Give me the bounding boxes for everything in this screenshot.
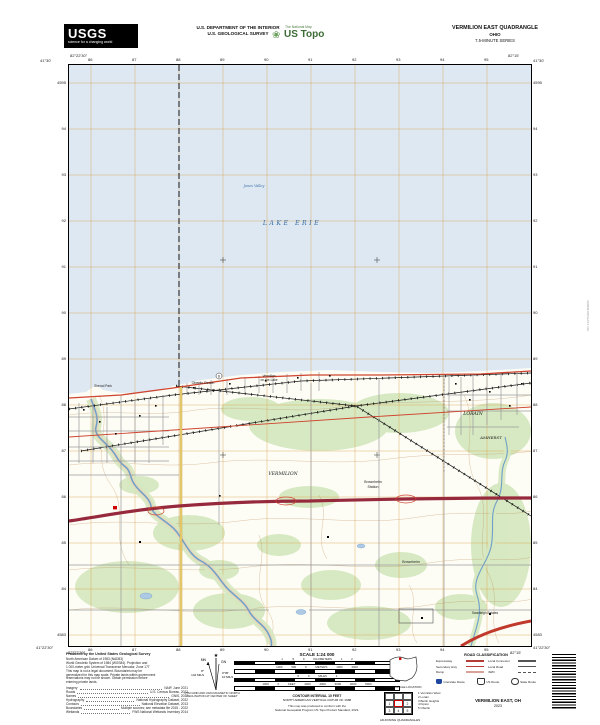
lake-erie-label: LAKE ERIE — [262, 220, 321, 227]
data-sources: ImageryNAIP, June 2021RoadsU.S. Census B… — [66, 687, 188, 714]
grid-tick-top: 90 — [264, 57, 268, 62]
adjoining-grid: 12345 — [384, 692, 413, 715]
grid-tick-bottom: 95 — [484, 647, 488, 652]
grid-tick-left: 4595 — [50, 80, 66, 85]
state-locator: QUADRANGLE LOCATION — [380, 654, 426, 689]
grid-tick-top: 95 — [484, 57, 488, 62]
grid-tick-top: 94 — [440, 57, 444, 62]
road-class-label: Local Connector — [488, 659, 516, 663]
grid-tick-left: 94 — [50, 126, 66, 131]
usgs-logo-word: USGS — [68, 28, 138, 40]
road-class-row: Ramp — [436, 670, 484, 674]
grid-tick-bottom: 93 — [396, 647, 400, 652]
ustopo-brand: US Topo — [284, 30, 332, 40]
road-class-sample — [518, 666, 536, 667]
corner-se-lat: 41°22'30" — [533, 645, 550, 650]
barcode — [552, 654, 576, 710]
map-area[interactable]: 6 LAKE ERIE Jones Valley Sherod Park Obe… — [68, 64, 532, 647]
adjoining-caption: ADJOINING QUADRANGLES — [378, 718, 422, 722]
grid-tick-bottom: 92 — [352, 647, 356, 652]
adjoining-cell — [394, 693, 403, 700]
grid-tick-left: 4583 — [50, 632, 66, 637]
grid-tick-right: 91 — [533, 264, 537, 269]
adjoining-cell: 2 — [403, 700, 412, 707]
grid-tick-bottom: 87 — [132, 647, 136, 652]
road-class-row: Secondary Hwy — [436, 665, 484, 669]
road-class-label: Secondary Hwy — [436, 665, 464, 669]
road-classification-title: ROAD CLASSIFICATION — [436, 653, 536, 657]
sheet-year: 2023 — [446, 704, 550, 708]
grid-tick-left: 84 — [50, 586, 66, 591]
road-class-label: Local Road — [488, 665, 516, 669]
source-value: FWS National Wetlands Inventory 2014 — [132, 711, 188, 715]
adjoining-cell: 4 — [394, 707, 403, 714]
road-class-row: 4WD — [488, 670, 536, 674]
grid-tick-top: 92 — [352, 57, 356, 62]
corner-sw-lat: 41°22'30" — [36, 645, 53, 650]
standard-note: This map was produced to conform with th… — [228, 705, 406, 713]
grid-tick-top: 93 — [396, 57, 400, 62]
ohio-outline — [390, 657, 417, 681]
shield-legend-label: State Route — [520, 680, 536, 684]
lorain-label: LORAIN — [462, 411, 483, 417]
amherst-label: AMHERST — [479, 435, 502, 440]
grid-tick-top: 91 — [308, 57, 312, 62]
road-class-label: 4WD — [488, 670, 516, 674]
sherod-park-label: Sherod Park — [94, 384, 112, 388]
grid-tick-left: 86 — [50, 494, 66, 499]
corner-ne-lat: 41°30' — [533, 58, 544, 63]
grid-tick-top: 88 — [176, 57, 180, 62]
standard-note-line2: National Geospatial Program US Topo Prod… — [228, 709, 406, 713]
grid-tick-right: 89 — [533, 356, 537, 361]
quad-location-marker — [399, 658, 401, 660]
edge-note: VERMILION EAST, OH — [586, 300, 590, 331]
grid-tick-right: 87 — [533, 448, 537, 453]
grid-tick-left: 89 — [50, 356, 66, 361]
quad-series: 7.5-MINUTE SERIES — [400, 38, 590, 43]
corner-nw-lon: 82°22'30" — [70, 53, 87, 58]
road-class-left-column: ExpresswaySecondary HwyRamp — [436, 659, 484, 676]
grid-tick-right: 4595 — [533, 80, 542, 85]
road-class-label: Ramp — [436, 670, 464, 674]
scale-bar-ft — [234, 686, 400, 690]
grid-tick-right: 88 — [533, 402, 537, 407]
grid-tick-right: 92 — [533, 218, 537, 223]
road-class-row: Local Road — [488, 665, 536, 669]
shield-legend-item: US Route — [477, 678, 500, 686]
grid-tick-bottom: 90 — [264, 647, 268, 652]
adjoining-cell: 5 — [403, 707, 412, 714]
road-class-right-column: Local ConnectorLocal Road4WD — [488, 659, 536, 676]
grid-tick-left: 85 — [50, 540, 66, 545]
grid-tick-right: 93 — [533, 172, 537, 177]
grid-tick-left: 93 — [50, 172, 66, 177]
source-leader — [81, 713, 130, 714]
production-credits: Produced by the United States Geological… — [66, 653, 188, 715]
grid-tick-left: 91 — [50, 264, 66, 269]
usgs-logo-tagline: science for a changing world — [68, 40, 138, 44]
sheet-name-block: VERMILION EAST, OH 2023 — [446, 698, 550, 708]
source-leader — [77, 693, 148, 694]
brownhelm-station-label2: Station — [368, 485, 379, 489]
road-classification-legend: ROAD CLASSIFICATION ExpresswaySecondary … — [436, 653, 536, 685]
grid-tick-right: 90 — [533, 310, 537, 315]
road-class-row: Expressway — [436, 659, 484, 663]
ustopo-flower-icon: ❀ — [272, 30, 280, 41]
grid-tick-bottom: 86 — [88, 647, 92, 652]
mn-mils: 142 MILS — [191, 673, 204, 677]
road-class-row: Local Connector — [488, 659, 536, 663]
grid-tick-bottom: 89 — [220, 647, 224, 652]
brownhelm-label: Brownhelm — [402, 560, 420, 564]
grid-tick-right: 86 — [533, 494, 537, 499]
topo-map: 6 LAKE ERIE Jones Valley Sherod Park Obe… — [69, 65, 531, 646]
road-class-sample — [466, 671, 484, 673]
state-route-shield-icon — [511, 678, 519, 686]
road-class-sample — [518, 672, 536, 673]
us6-shield-label: 6 — [218, 375, 220, 379]
route-shields: 6 — [216, 373, 222, 379]
grid-tick-right: 84 — [533, 586, 537, 591]
shield-legend-label: US Route — [486, 680, 499, 684]
oberlin-beach-label: Oberlin Beach — [192, 381, 215, 385]
road-class-sample — [466, 666, 484, 668]
adjoining-cell: 1 — [385, 700, 394, 707]
source-row: WetlandsFWS National Wetlands Inventory … — [66, 711, 188, 715]
brownhelm-station-label1: Brownhelm — [364, 480, 382, 484]
gn-label: GN — [221, 660, 227, 664]
fineprint-line: entering private lands. — [66, 681, 188, 685]
grid-tick-bottom: 91 — [308, 647, 312, 652]
grid-tick-right: 94 — [533, 126, 537, 131]
quad-state: OHIO — [400, 32, 590, 37]
grid-tick-top: 87 — [132, 57, 136, 62]
source-leader — [86, 701, 134, 702]
grid-tick-top: 89 — [220, 57, 224, 62]
road-class-label: Expressway — [436, 659, 464, 663]
grid-tick-right: 85 — [533, 540, 537, 545]
corner-ne-lon: 82°15' — [508, 53, 519, 58]
sheet-name: VERMILION EAST, OH — [446, 698, 550, 703]
road-class-sample — [518, 660, 536, 661]
vermilion-township-label: VERMILION — [268, 471, 298, 477]
usgs-topo-sheet: USGS science for a changing world U.S. D… — [0, 0, 600, 725]
grid-tick-bottom: 88 — [176, 647, 180, 652]
us-route-shield-icon — [477, 678, 485, 685]
grid-tick-left: 88 — [50, 402, 66, 407]
interstate-shield-icon — [436, 679, 442, 684]
grid-tick-top: 86 — [88, 57, 92, 62]
vermilion-on-the-lake-label2: on-the-Lake — [260, 378, 277, 382]
usgs-logo: USGS science for a changing world — [64, 24, 138, 48]
route-shield-legend: Interstate RouteUS RouteState Route — [436, 678, 536, 686]
grid-tick-right: 4583 — [533, 632, 542, 637]
road-class-sample — [466, 660, 484, 663]
jones-valley-label: Jones Valley — [243, 184, 265, 188]
source-leader — [84, 709, 119, 710]
grid-tick-left: 92 — [50, 218, 66, 223]
vertical-datum-note: NORTH AMERICAN VERTICAL DATUM OF 1988 — [228, 698, 406, 702]
adjoining-quadrangles: 12345 1 Vermilion West2 Lorain3 Berlin H… — [384, 692, 413, 715]
quad-title: VERMILION EAST QUADRANGLE — [400, 25, 590, 31]
shield-legend-label: Interstate Route — [444, 680, 465, 684]
adjoining-cell: 3 — [385, 707, 394, 714]
quad-title-block: VERMILION EAST QUADRANGLE OHIO 7.5-MINUT… — [400, 25, 590, 43]
shield-legend-item: Interstate Route — [436, 678, 465, 686]
fineprint-lines: North American Datum of 1983 (NAD83)Worl… — [66, 658, 188, 685]
grid-tick-bottom: 94 — [440, 647, 444, 652]
grid-tick-left: 87 — [50, 448, 66, 453]
grid-tick-left: 90 — [50, 310, 66, 315]
quad-location-caption: QUADRANGLE LOCATION — [380, 685, 426, 689]
adjoining-cell — [385, 693, 394, 700]
true-north-star: ★ — [214, 653, 219, 659]
shield-legend-item: State Route — [511, 678, 536, 686]
ustopo-logo: ❀ The National Map US Topo — [272, 26, 332, 40]
mn-label: MN — [201, 658, 207, 662]
adjoining-cell — [394, 700, 403, 707]
corner-nw-lat: 41°30' — [40, 58, 51, 63]
adjoining-cell — [403, 693, 412, 700]
swanleigh-estates-label: Swanleigh Estates — [472, 611, 499, 615]
source-key: Wetlands — [66, 711, 79, 715]
